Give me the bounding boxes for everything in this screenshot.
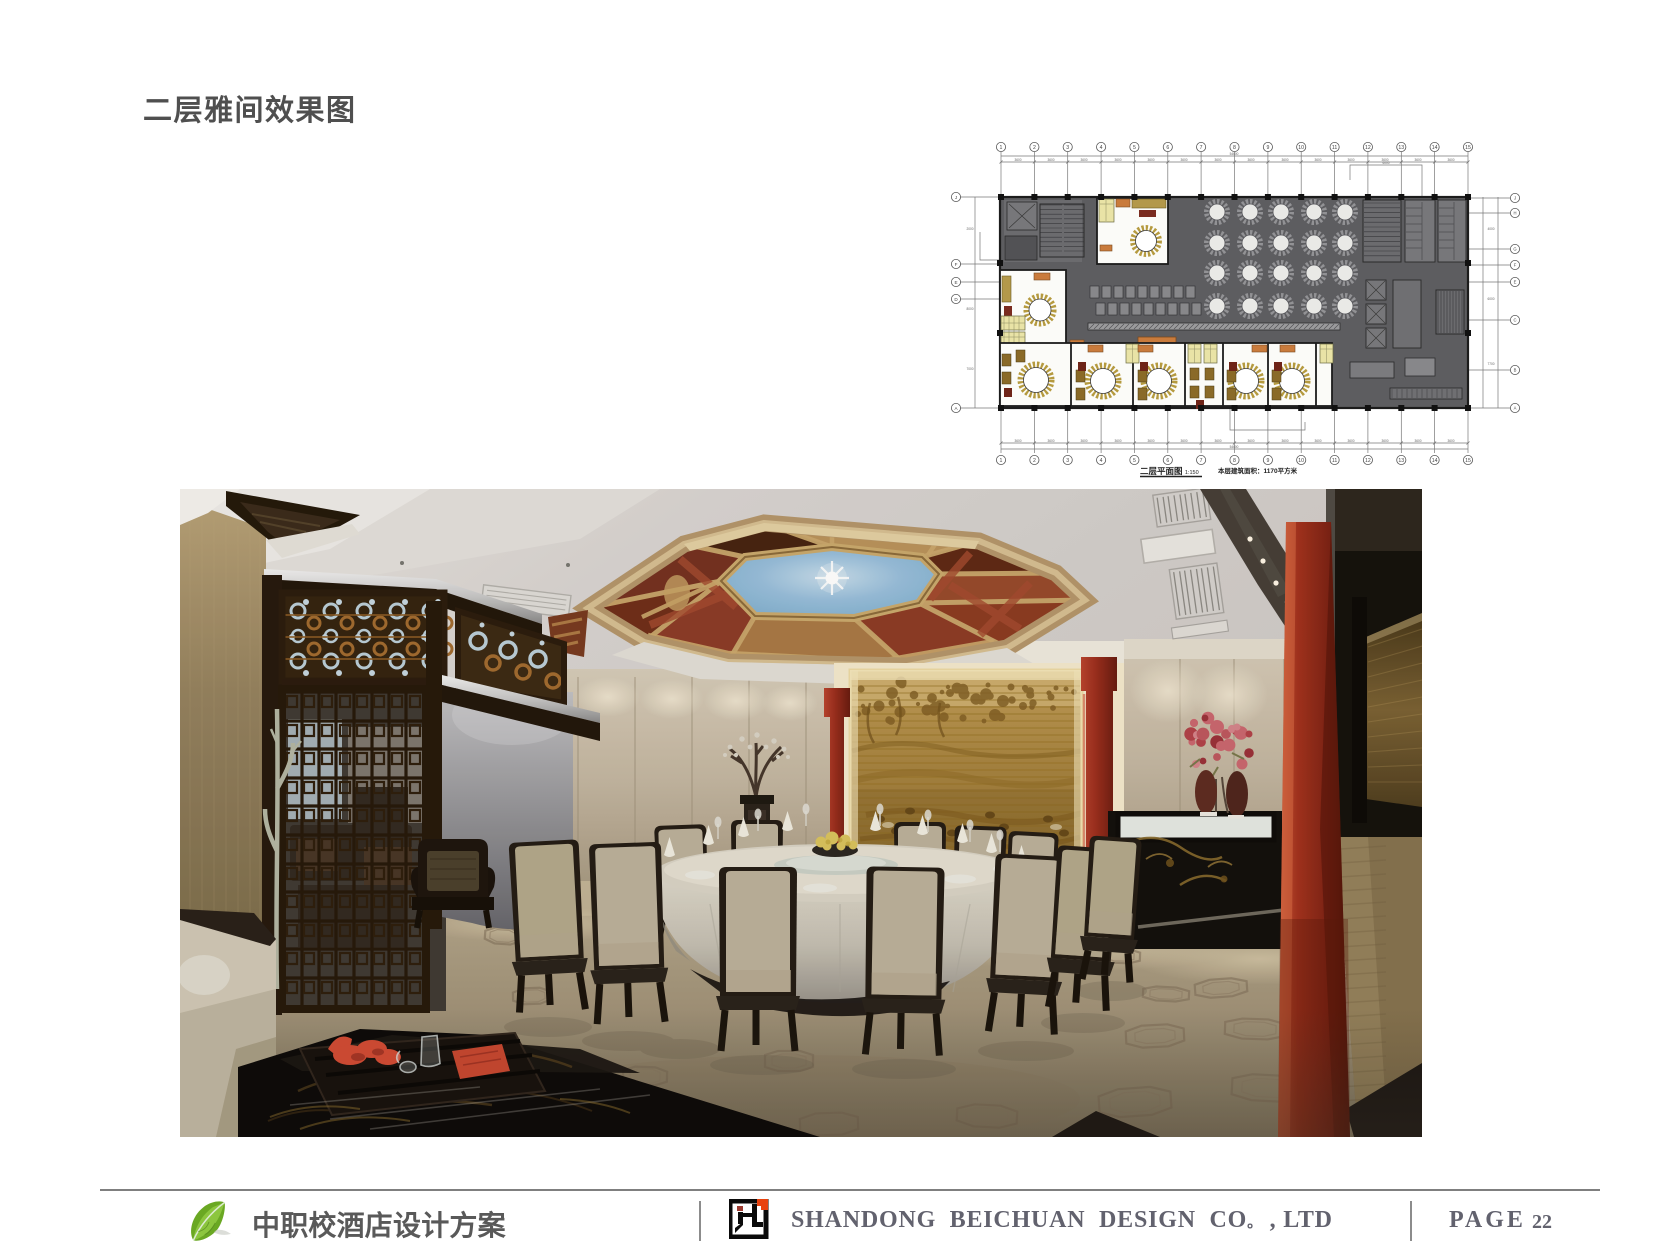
svg-text:3600: 3600 <box>1047 439 1054 443</box>
svg-text:2: 2 <box>1033 458 1036 464</box>
svg-text:E: E <box>954 280 957 285</box>
svg-text:1: 1 <box>1000 458 1003 464</box>
svg-text:11: 11 <box>1332 145 1337 151</box>
svg-text:10: 10 <box>1298 458 1304 464</box>
svg-text:3600: 3600 <box>1014 158 1021 162</box>
svg-text:54600: 54600 <box>1230 445 1239 449</box>
svg-text:3600: 3600 <box>1281 158 1288 162</box>
svg-text:1: 1 <box>1000 145 1003 151</box>
svg-text:7700: 7700 <box>1487 362 1494 366</box>
svg-text:3600: 3600 <box>1381 439 1388 443</box>
svg-text:A: A <box>1514 406 1517 411</box>
svg-text:3: 3 <box>1066 145 1069 151</box>
svg-text:3600: 3600 <box>1447 158 1454 162</box>
svg-text:12: 12 <box>1365 458 1371 464</box>
svg-text:3600: 3600 <box>1447 439 1454 443</box>
svg-text:F: F <box>955 262 958 267</box>
svg-text:13: 13 <box>1398 458 1404 464</box>
svg-text:2: 2 <box>1033 145 1036 151</box>
svg-text:8: 8 <box>1233 458 1236 464</box>
svg-text:6: 6 <box>1166 458 1169 464</box>
svg-text:15: 15 <box>1465 458 1471 464</box>
svg-text:3600: 3600 <box>1047 158 1054 162</box>
svg-text:6000: 6000 <box>1382 161 1389 165</box>
svg-text:J: J <box>1514 196 1516 201</box>
svg-text:2000: 2000 <box>966 227 973 231</box>
svg-text:9: 9 <box>1266 145 1269 151</box>
svg-text:D: D <box>954 297 958 302</box>
svg-text:J: J <box>955 195 957 200</box>
svg-text:3600: 3600 <box>1180 439 1187 443</box>
svg-text:3600: 3600 <box>1080 158 1087 162</box>
svg-text:3600: 3600 <box>1180 158 1187 162</box>
svg-text:二层平面图 1:150: 二层平面图 1:150 <box>1140 466 1199 476</box>
svg-text:6000: 6000 <box>1487 297 1494 301</box>
svg-text:3600: 3600 <box>1147 439 1154 443</box>
svg-text:3600: 3600 <box>1414 158 1421 162</box>
svg-text:3600: 3600 <box>1247 439 1254 443</box>
svg-text:E: E <box>1514 280 1517 285</box>
svg-text:14: 14 <box>1432 145 1438 151</box>
svg-text:3600: 3600 <box>1347 439 1354 443</box>
svg-text:3600: 3600 <box>1281 439 1288 443</box>
svg-text:3600: 3600 <box>1314 158 1321 162</box>
svg-text:A: A <box>954 406 958 411</box>
svg-text:3600: 3600 <box>1314 439 1321 443</box>
svg-text:8: 8 <box>1233 145 1236 151</box>
svg-text:B: B <box>1514 368 1517 373</box>
svg-text:3600: 3600 <box>1214 158 1221 162</box>
svg-text:3600: 3600 <box>1114 158 1121 162</box>
svg-text:H: H <box>1513 211 1516 216</box>
svg-text:7: 7 <box>1200 458 1203 464</box>
svg-text:6: 6 <box>1166 145 1169 151</box>
svg-text:3600: 3600 <box>1147 158 1154 162</box>
svg-text:3600: 3600 <box>1247 158 1254 162</box>
svg-text:11: 11 <box>1332 458 1337 464</box>
svg-text:4000: 4000 <box>1487 227 1494 231</box>
svg-text:C: C <box>1513 318 1516 323</box>
svg-text:3600: 3600 <box>1080 439 1087 443</box>
svg-text:15: 15 <box>1465 145 1471 151</box>
svg-text:54600: 54600 <box>1230 152 1239 156</box>
svg-text:7000: 7000 <box>966 367 973 371</box>
svg-text:8000: 8000 <box>966 307 973 311</box>
svg-text:12: 12 <box>1365 145 1371 151</box>
svg-text:3600: 3600 <box>1347 158 1354 162</box>
svg-text:14: 14 <box>1432 458 1438 464</box>
svg-text:3600: 3600 <box>1414 439 1421 443</box>
svg-text:G: G <box>1513 247 1516 252</box>
svg-text:3600: 3600 <box>1114 439 1121 443</box>
svg-text:5: 5 <box>1133 458 1136 464</box>
svg-text:4: 4 <box>1100 458 1103 464</box>
svg-text:3600: 3600 <box>1214 439 1221 443</box>
svg-text:7: 7 <box>1200 145 1203 151</box>
svg-text:4: 4 <box>1100 145 1103 151</box>
svg-text:9: 9 <box>1266 458 1269 464</box>
svg-text:13: 13 <box>1398 145 1404 151</box>
svg-text:3: 3 <box>1066 458 1069 464</box>
svg-text:3600: 3600 <box>1014 439 1021 443</box>
svg-text:F: F <box>1514 263 1517 268</box>
svg-text:10: 10 <box>1298 145 1304 151</box>
svg-text:5: 5 <box>1133 145 1136 151</box>
svg-text:本层建筑面积：1170平方米: 本层建筑面积：1170平方米 <box>1218 466 1298 475</box>
